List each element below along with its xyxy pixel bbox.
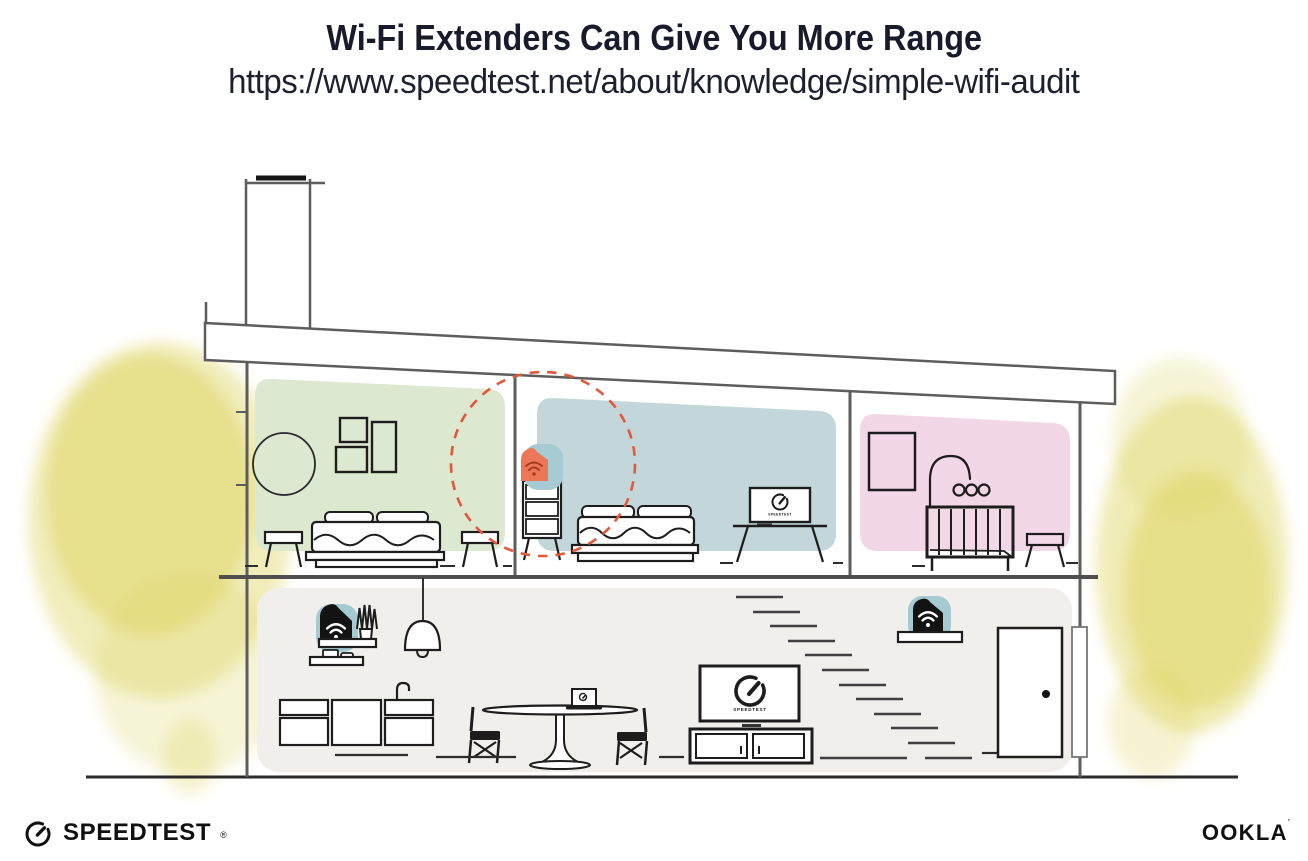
speedtest-logo: SPEEDTEST®: [22, 816, 227, 850]
speedtest-wordmark: SPEEDTEST: [63, 819, 211, 847]
laptop: [566, 689, 602, 710]
wifi-extender-upstairs: [521, 444, 563, 490]
page-url: https://www.speedtest.net/about/knowledg…: [0, 63, 1308, 102]
page-title: Wi-Fi Extenders Can Give You More Range: [0, 18, 1308, 58]
bedroom-tv-label: SPEEDTEST: [768, 513, 792, 517]
chimney: [245, 178, 325, 332]
ookla-trademark: ’: [1288, 818, 1290, 829]
entry-door: [998, 627, 1087, 757]
foliage-right: [1096, 358, 1288, 778]
ookla-logo: OOKLA’: [1202, 820, 1290, 846]
ookla-wordmark: OOKLA: [1202, 820, 1288, 845]
living-tv-label: SPEEDTEST: [733, 707, 767, 712]
speedtest-gauge-icon: [22, 816, 54, 850]
media-console: [690, 729, 812, 763]
ground-shadows: [912, 563, 1078, 566]
registered-mark: ®: [220, 830, 227, 840]
door-knob: [1042, 690, 1050, 698]
infographic-page: Wi-Fi Extenders Can Give You More Range …: [0, 0, 1308, 861]
door-trim: [1072, 627, 1087, 757]
house-cross-section-illustration: SPEEDTEST: [0, 0, 1308, 861]
header: Wi-Fi Extenders Can Give You More Range …: [0, 18, 1308, 102]
living-room-tv: SPEEDTEST: [690, 666, 812, 763]
foliage-left: [28, 342, 292, 795]
